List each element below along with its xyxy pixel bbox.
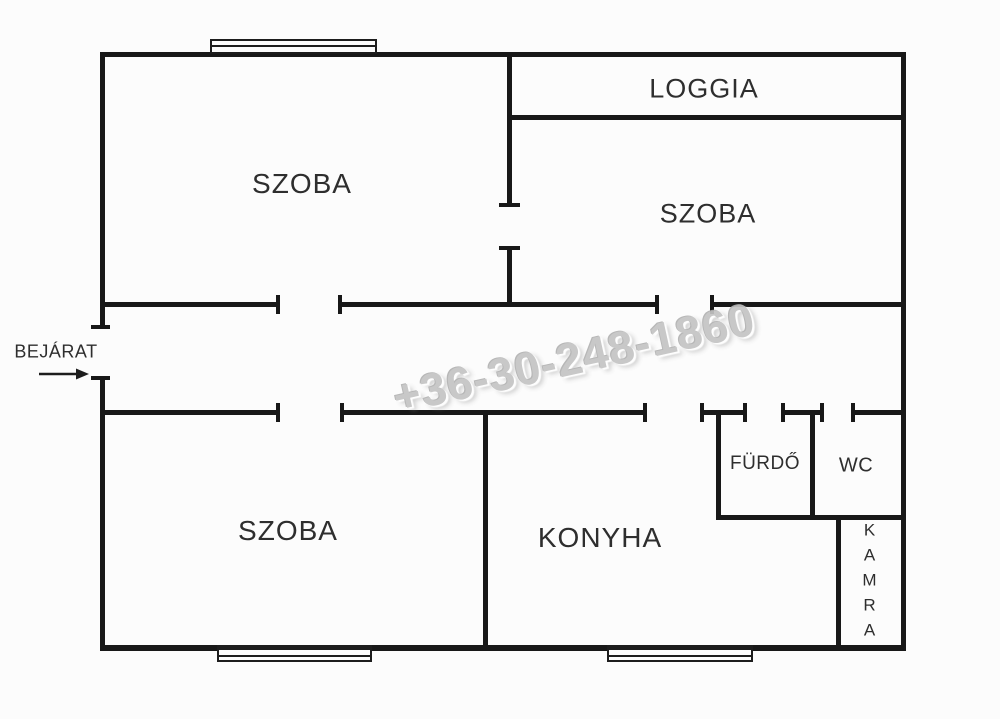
wall-hall-top-a xyxy=(100,302,278,307)
window-midline xyxy=(219,655,370,657)
door-jamb-entrance-bottom xyxy=(91,376,110,380)
wall-outer-right xyxy=(901,52,906,651)
door-jamb xyxy=(276,403,280,422)
room-label-szoba-bottom-left: SZOBA xyxy=(238,515,338,547)
door-jamb xyxy=(340,403,344,422)
wall-bathroom-bottom xyxy=(716,515,906,520)
door-jamb xyxy=(499,246,520,250)
wall-outer-left-upper xyxy=(100,52,105,327)
wall-pantry-left xyxy=(836,515,841,650)
room-label-furdo: FÜRDŐ xyxy=(730,453,800,475)
door-jamb xyxy=(643,403,647,422)
door-jamb xyxy=(851,403,855,422)
entrance-arrow-icon xyxy=(38,366,90,382)
wall-kitchen-divider xyxy=(483,410,488,650)
room-label-szoba-top-right: SZOBA xyxy=(660,199,757,230)
wall-hall-top-b xyxy=(340,302,657,307)
door-jamb xyxy=(820,403,824,422)
room-label-kamra: KAMRA xyxy=(859,521,879,646)
wall-upper-divider-b xyxy=(507,248,512,307)
wall-hall-bottom-e xyxy=(853,410,906,415)
wall-bathroom-left xyxy=(716,410,721,520)
room-label-wc: WC xyxy=(839,455,873,478)
wall-hall-bottom-d xyxy=(783,410,822,415)
door-jamb xyxy=(338,295,342,314)
door-jamb xyxy=(743,403,747,422)
entrance-label: BEJÁRAT xyxy=(14,342,97,363)
window-top-room xyxy=(210,39,377,54)
wall-loggia-bottom xyxy=(510,115,901,120)
wall-outer-left-lower xyxy=(100,378,105,651)
wall-hall-bottom-a xyxy=(100,410,278,415)
door-jamb xyxy=(276,295,280,314)
wall-upper-divider-a xyxy=(507,52,512,207)
door-jamb-entrance-top xyxy=(91,325,110,329)
window-midline xyxy=(212,45,375,47)
wall-bathroom-wc-divider xyxy=(810,410,815,520)
window-midline xyxy=(609,655,751,657)
door-jamb xyxy=(700,403,704,422)
door-jamb xyxy=(781,403,785,422)
watermark-phone-number: +36-30-248-1860 xyxy=(388,292,760,425)
window-kitchen xyxy=(607,645,753,662)
room-label-szoba-top-left: SZOBA xyxy=(252,168,352,200)
window-bottom-room xyxy=(217,645,372,662)
wall-hall-bottom-c xyxy=(702,410,745,415)
door-jamb xyxy=(499,203,520,207)
room-label-konyha: KONYHA xyxy=(538,522,662,554)
room-label-loggia: LOGGIA xyxy=(649,74,759,105)
floor-plan: SZOBA LOGGIA SZOBA SZOBA KONYHA FÜRDŐ WC… xyxy=(0,0,1000,719)
wall-hall-bottom-b xyxy=(342,410,645,415)
